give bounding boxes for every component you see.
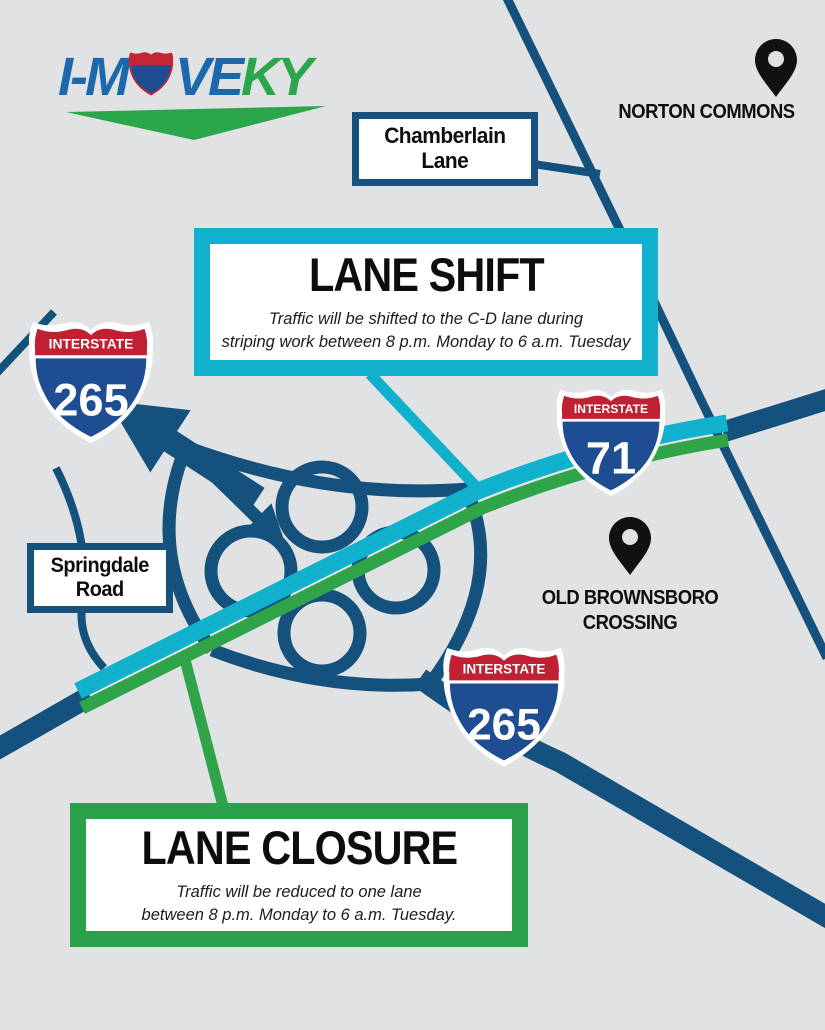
- shield-top-text: INTERSTATE: [463, 662, 546, 677]
- highway-i71-west-end: [0, 696, 90, 752]
- cd-lane-connector-teal: [370, 374, 483, 494]
- old-brownsboro-label: OLD BROWNSBORO CROSSING: [527, 586, 733, 636]
- logo-text-ve: VE: [175, 47, 241, 107]
- shield-number: 265: [53, 375, 128, 426]
- shield-number: 265: [467, 700, 541, 749]
- lane-shift-title: LANE SHIFT: [309, 251, 544, 298]
- shield-top-text: INTERSTATE: [49, 335, 134, 351]
- lane-shift-banner: LANE SHIFT Traffic will be shifted to th…: [194, 228, 658, 376]
- logo-text-i-m: I-M: [58, 47, 127, 107]
- springdale-road-label: Springdale Road: [51, 554, 149, 601]
- logo-swoosh: [66, 106, 328, 140]
- logo-shield-icon: [128, 51, 174, 101]
- i265-shield-west: INTERSTATE 265: [28, 320, 154, 457]
- shield-top-text: INTERSTATE: [574, 402, 648, 416]
- logo-text-ky: KY: [241, 47, 310, 107]
- springdale-road-box: Springdale Road: [27, 543, 173, 613]
- lane-closure-banner: LANE CLOSURE Traffic will be reduced to …: [70, 803, 528, 947]
- chamberlain-lane-label: Chamberlain Lane: [384, 124, 505, 173]
- highway-i71-east-end: [723, 398, 825, 432]
- imoveky-logo-text: I-M VEKY: [58, 50, 358, 104]
- norton-commons-label: NORTON COMMONS: [597, 100, 815, 125]
- i265-shield-south: INTERSTATE 265: [442, 646, 566, 780]
- shield-number: 71: [586, 432, 636, 483]
- old-brownsboro-pin-icon: [608, 516, 652, 576]
- lane-closure-title: LANE CLOSURE: [141, 824, 457, 871]
- imoveky-logo: I-M VEKY: [58, 50, 358, 140]
- lane-closure-banner-inner: LANE CLOSURE Traffic will be reduced to …: [86, 819, 512, 931]
- lane-closure-connector-green: [183, 652, 223, 806]
- chamberlain-lane-box: Chamberlain Lane: [352, 112, 538, 186]
- norton-commons-pin-icon: [754, 38, 798, 98]
- lane-closure-description: Traffic will be reduced to one lane betw…: [142, 881, 457, 926]
- i71-shield: INTERSTATE 71: [556, 388, 666, 508]
- lane-shift-banner-inner: LANE SHIFT Traffic will be shifted to th…: [210, 244, 642, 360]
- lane-shift-description: Traffic will be shifted to the C-D lane …: [222, 308, 631, 353]
